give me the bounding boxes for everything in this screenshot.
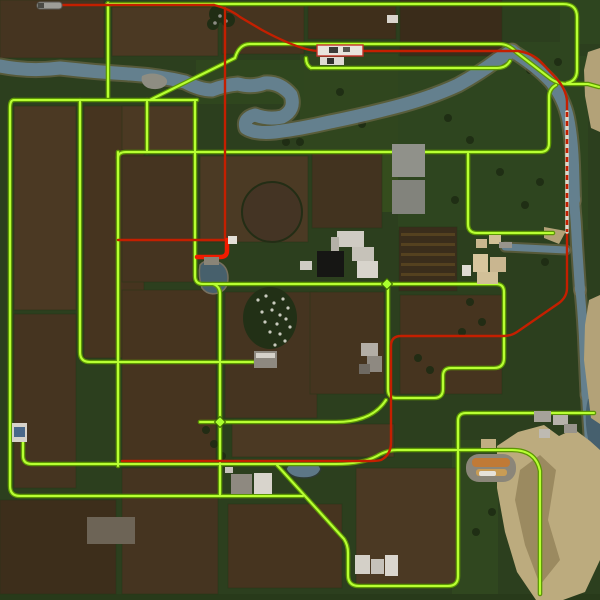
racetrack <box>466 454 516 482</box>
game-map-canvas[interactable] <box>0 0 600 600</box>
pda-map-window <box>0 0 600 600</box>
